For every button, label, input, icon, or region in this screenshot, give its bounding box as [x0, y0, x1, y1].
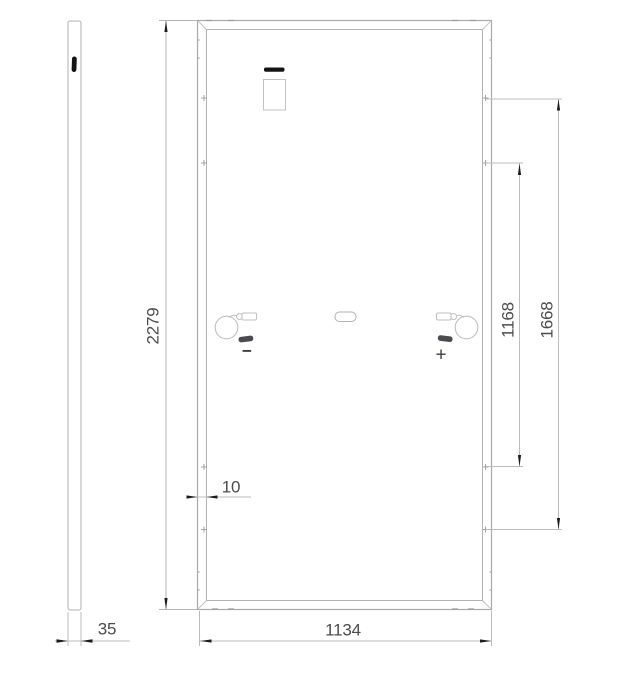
- arrow-up-icon: [518, 164, 521, 176]
- connector-body-icon: [242, 313, 257, 320]
- arrow-down-icon: [557, 518, 560, 530]
- grounding-slot-icon: [335, 312, 356, 322]
- dim-mount-span-inner-label: 1168: [500, 302, 517, 338]
- polarity-negative-label: −: [242, 343, 252, 360]
- panel-rear-view: [198, 21, 492, 610]
- dim-width-label: 1134: [325, 622, 361, 639]
- arrow-up-icon: [557, 99, 560, 111]
- junction-box-cover-icon: [264, 68, 285, 72]
- side-profile-view: [68, 21, 81, 610]
- junction-box-body: [264, 80, 286, 111]
- side-junction-bump-icon: [72, 56, 77, 72]
- arrow-up-icon: [164, 21, 167, 33]
- arrow-down-icon: [518, 455, 521, 467]
- connector-body-icon: [437, 313, 452, 320]
- technical-drawing: [0, 0, 621, 700]
- dim-thickness: [55, 612, 130, 646]
- arrow-right-icon: [480, 639, 492, 642]
- arrow-left-icon: [200, 639, 212, 642]
- arrow-right-icon: [187, 495, 198, 498]
- polarity-positive-label: +: [435, 346, 446, 365]
- dim-mount-span-outer-label: 1668: [539, 301, 556, 338]
- arrow-left-icon: [81, 639, 93, 642]
- dim-thickness-label: 35: [98, 621, 117, 638]
- dim-frame-edge-label: 10: [222, 479, 241, 496]
- drawing-canvas: 2279 35 10 1134 1168 1668 − +: [0, 0, 621, 700]
- arrow-down-icon: [164, 598, 167, 610]
- dim-height: [159, 21, 197, 610]
- dim-height-label: 2279: [145, 307, 162, 344]
- arrow-right-icon: [57, 639, 69, 642]
